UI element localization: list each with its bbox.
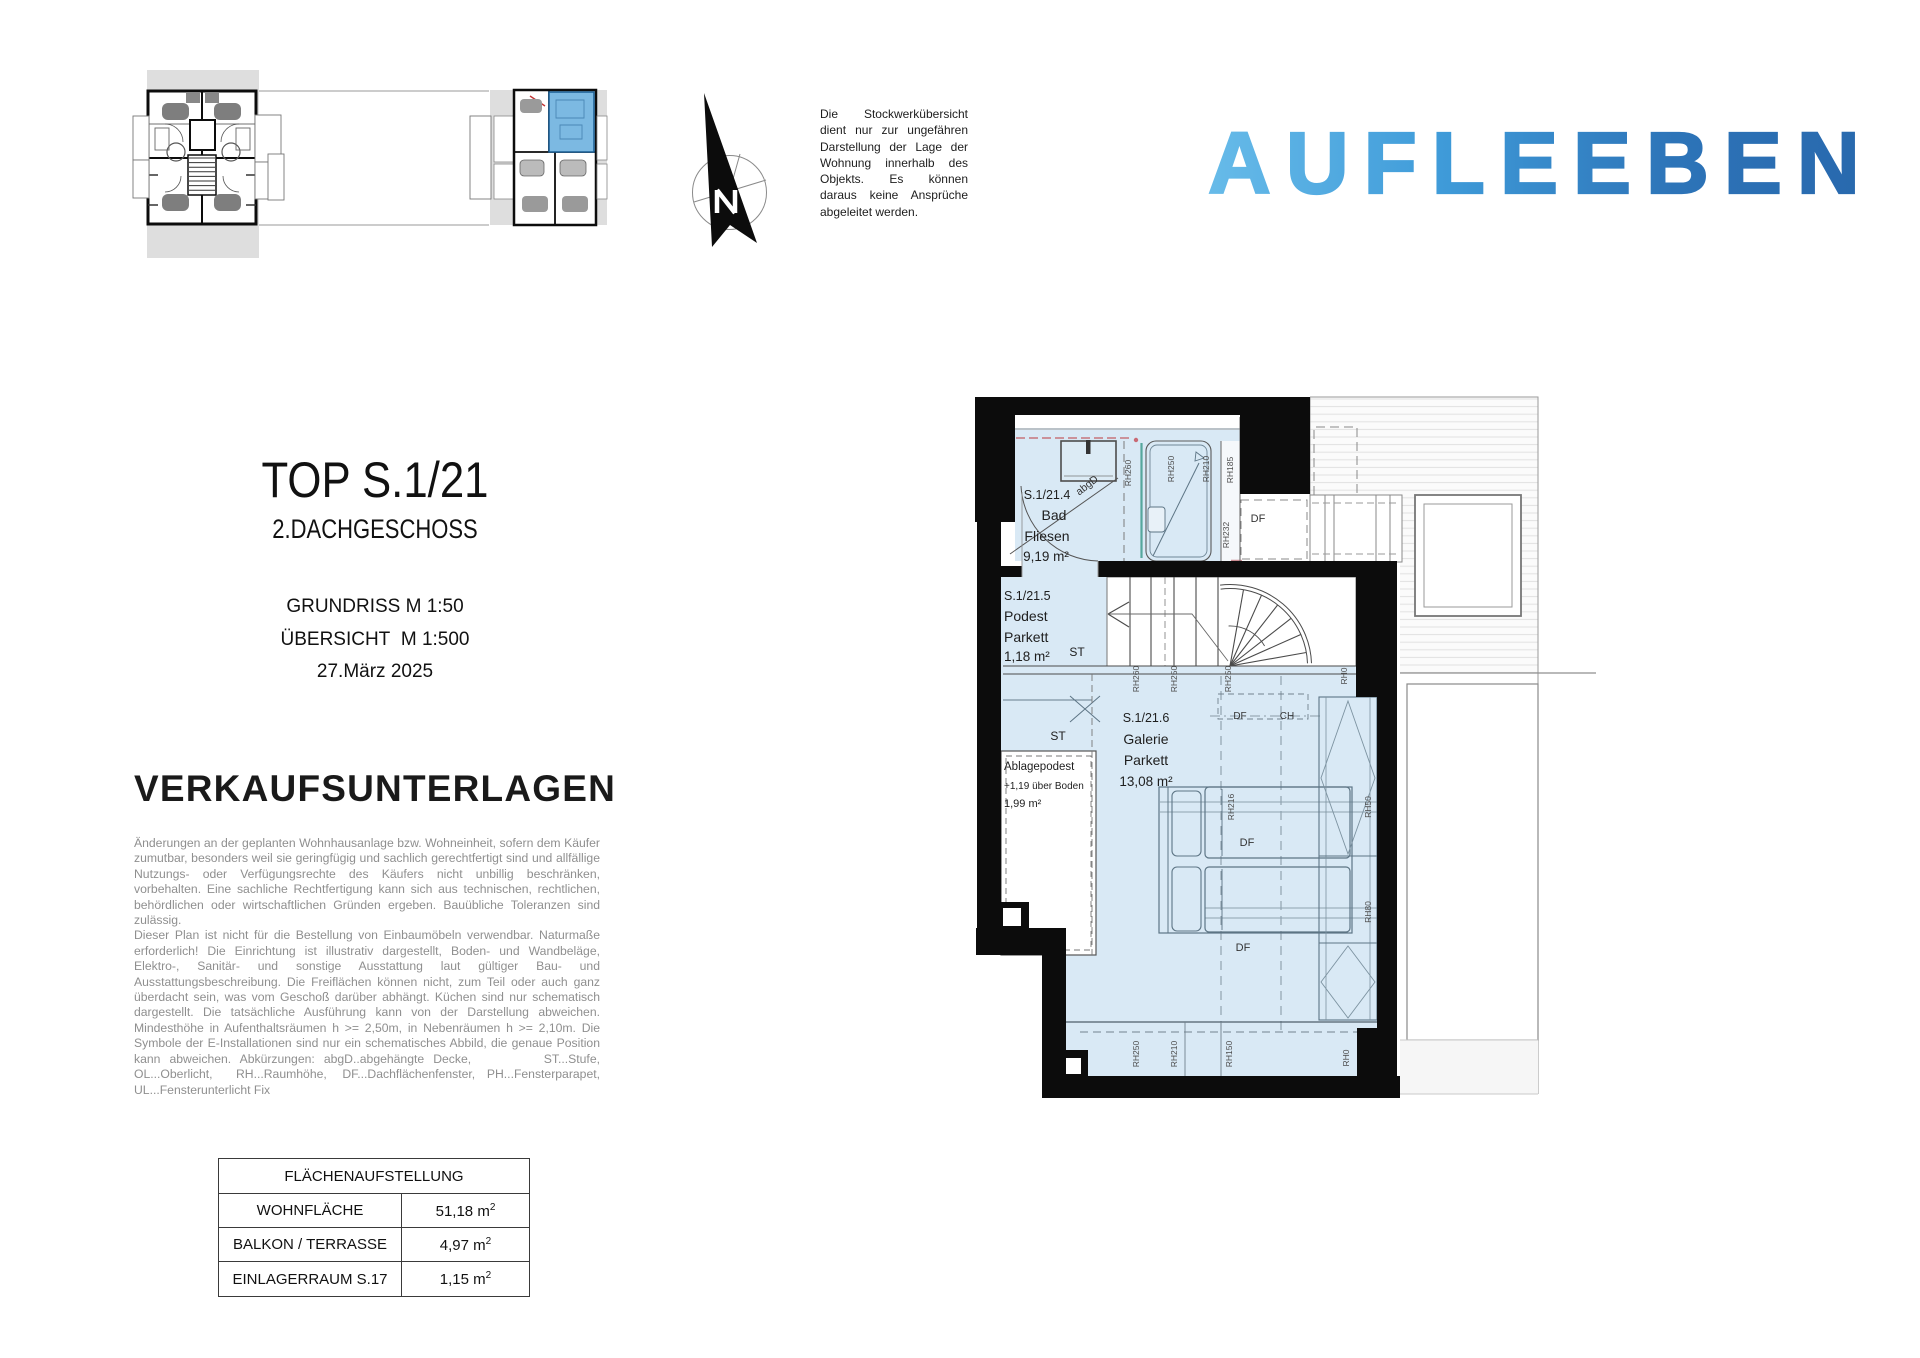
svg-text:13,08 m²: 13,08 m² (1119, 774, 1173, 789)
svg-text:1,99 m²: 1,99 m² (1004, 798, 1042, 810)
svg-text:RH80: RH80 (1363, 901, 1373, 923)
svg-text:Fliesen: Fliesen (1024, 528, 1069, 544)
svg-text:Parkett: Parkett (1004, 629, 1048, 645)
svg-text:RH250: RH250 (1131, 1041, 1141, 1068)
svg-text:RH216: RH216 (1226, 794, 1236, 821)
svg-text:RH0: RH0 (1341, 1049, 1351, 1066)
svg-text:Galerie: Galerie (1123, 731, 1168, 747)
svg-text:RH260: RH260 (1131, 666, 1141, 693)
svg-text:Podest: Podest (1004, 608, 1048, 624)
svg-text:DF: DF (1236, 942, 1251, 954)
svg-text:DF: DF (1251, 513, 1266, 525)
svg-text:Parkett: Parkett (1124, 752, 1168, 768)
svg-text:S.1/21.6: S.1/21.6 (1123, 711, 1170, 725)
svg-text:RH210: RH210 (1169, 1041, 1179, 1068)
svg-text:RH250: RH250 (1169, 666, 1179, 693)
svg-text:RH210: RH210 (1201, 456, 1211, 483)
svg-text:S.1/21.5: S.1/21.5 (1004, 589, 1051, 603)
svg-text:S.1/21.4: S.1/21.4 (1024, 488, 1071, 502)
svg-text:ST: ST (1069, 645, 1085, 659)
svg-text:RH232: RH232 (1221, 522, 1231, 549)
svg-text:Bad: Bad (1042, 507, 1067, 523)
svg-text:RH0: RH0 (1339, 667, 1349, 684)
svg-text:RH185: RH185 (1225, 457, 1235, 484)
svg-text:AUFLEEBEN: AUFLEEBEN (1208, 115, 1875, 212)
svg-text:RH250: RH250 (1223, 666, 1233, 693)
svg-text:CH: CH (1280, 711, 1294, 722)
svg-text:DF: DF (1233, 711, 1246, 722)
svg-text:1,18 m²: 1,18 m² (1004, 649, 1050, 664)
svg-text:+1,19 über Boden: +1,19 über Boden (1004, 781, 1084, 792)
svg-text:9,19 m²: 9,19 m² (1023, 549, 1069, 564)
svg-text:RH260: RH260 (1123, 460, 1133, 487)
svg-text:RH50: RH50 (1363, 796, 1373, 818)
svg-text:DF: DF (1240, 837, 1255, 849)
svg-text:RH150: RH150 (1224, 1041, 1234, 1068)
svg-text:Ablagepodest: Ablagepodest (1004, 761, 1075, 773)
svg-text:ST: ST (1050, 729, 1066, 743)
svg-text:RH250: RH250 (1166, 456, 1176, 483)
